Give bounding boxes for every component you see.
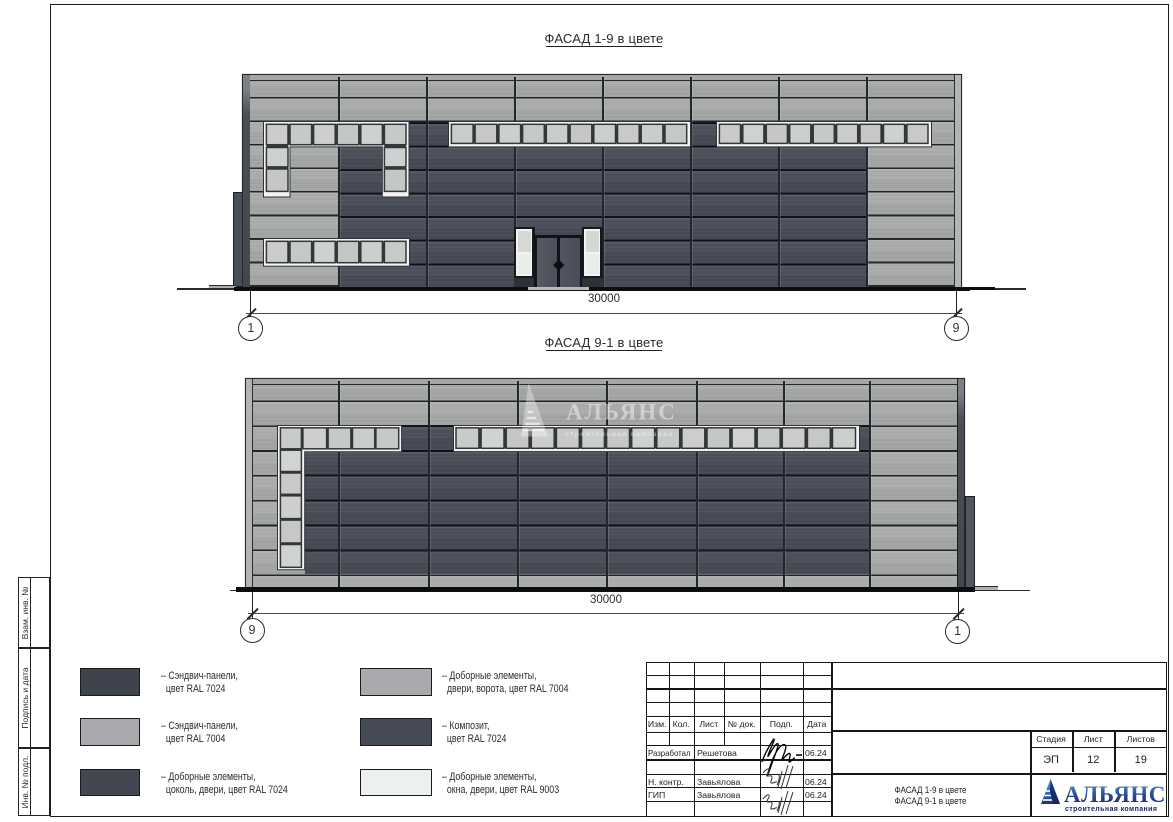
svg-text:строительная компания: строительная компания [1065, 806, 1157, 813]
svg-text:строительная компания: строительная компания [565, 431, 674, 438]
svg-text:АЛЬЯНС: АЛЬЯНС [566, 400, 677, 425]
svg-text:АЛЬЯНС: АЛЬЯНС [1064, 782, 1165, 807]
